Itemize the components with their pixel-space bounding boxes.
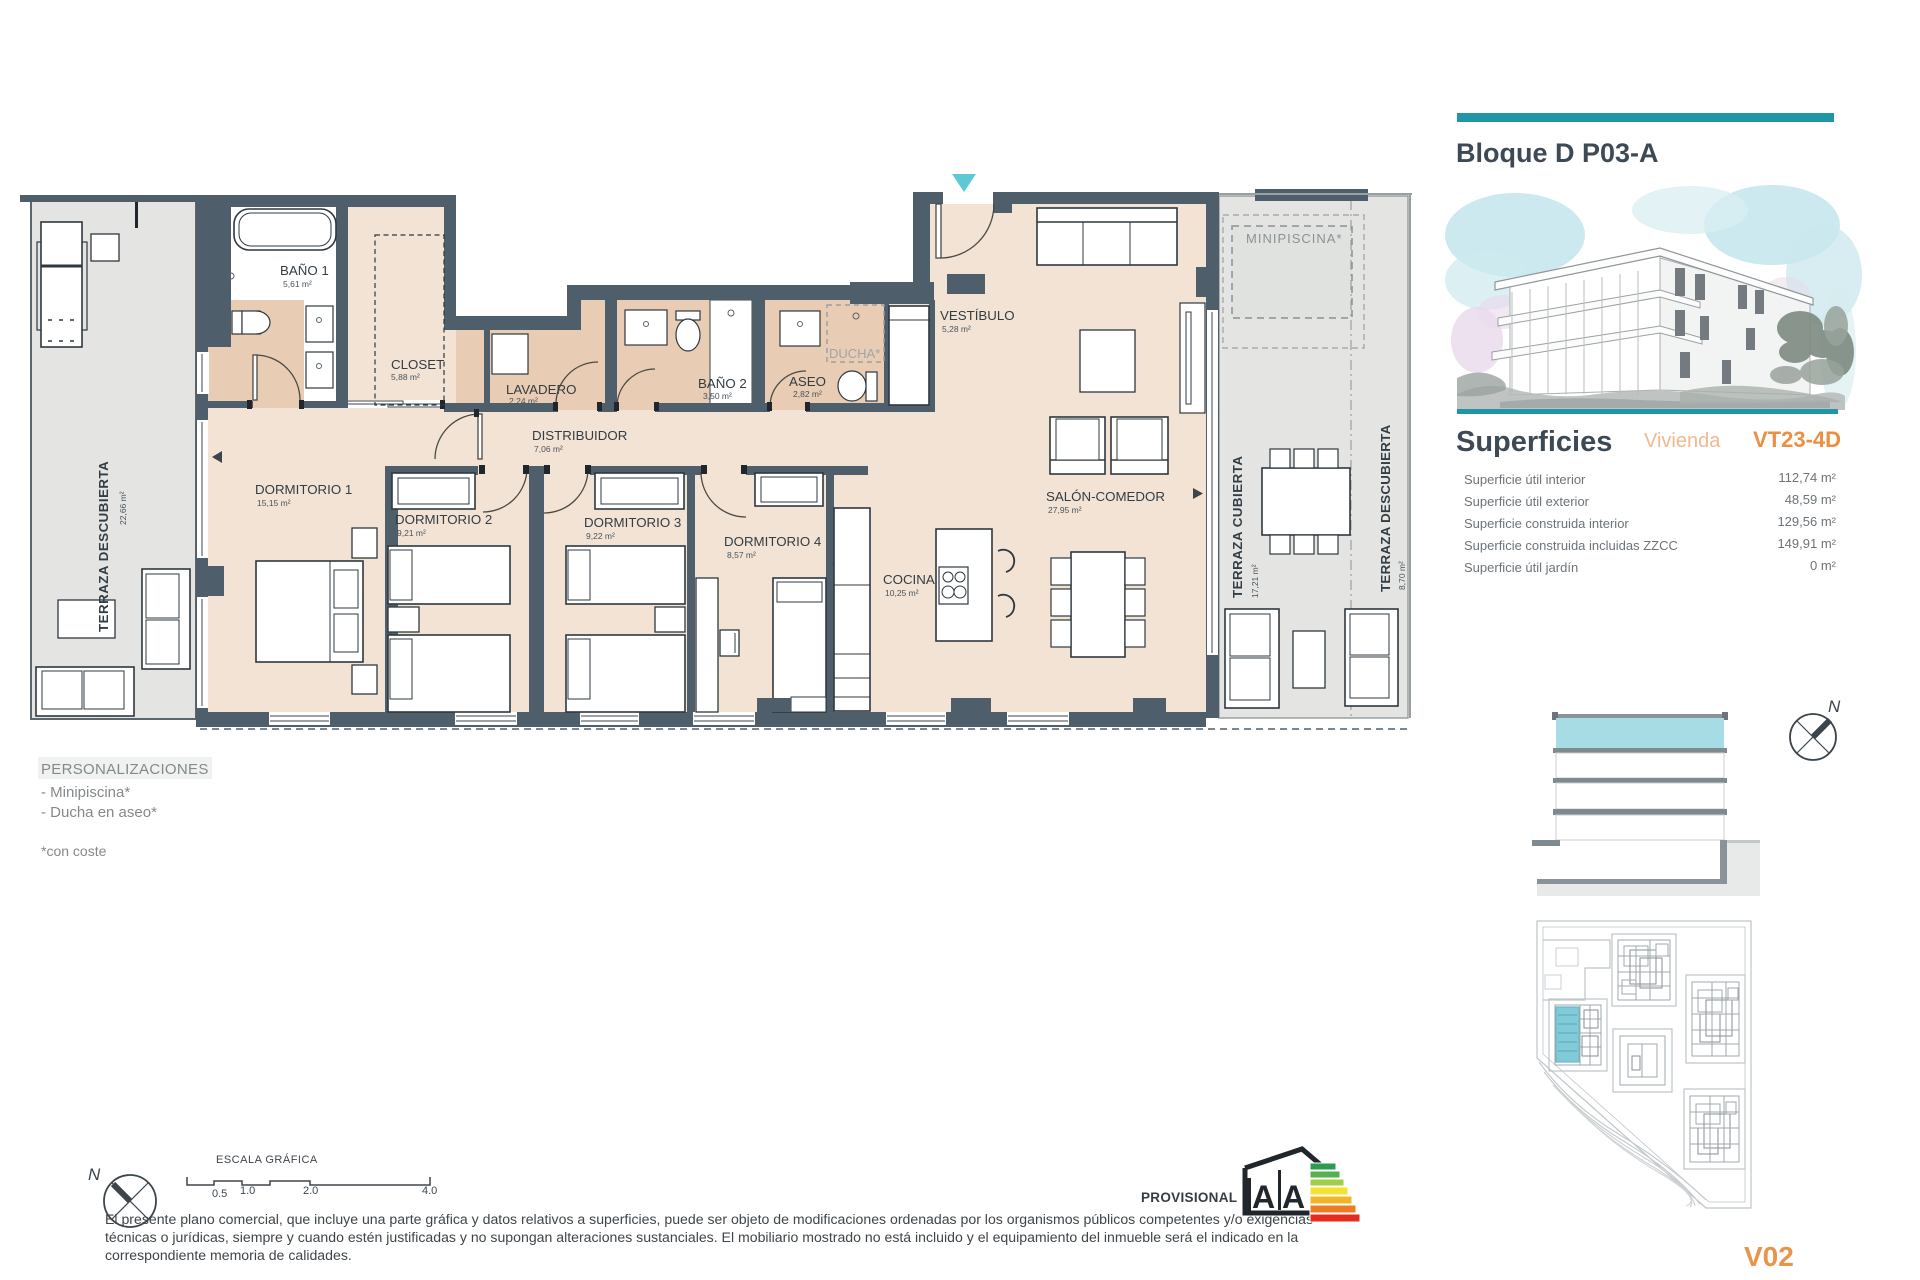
svg-text:48,59 m²: 48,59 m² [1785, 492, 1837, 507]
svg-text:Vivienda: Vivienda [1644, 430, 1721, 452]
svg-text:8,70 m²: 8,70 m² [1397, 561, 1407, 590]
svg-text:7,06 m²: 7,06 m² [534, 444, 563, 454]
svg-text:8,57 m²: 8,57 m² [727, 550, 756, 560]
svg-text:V02: V02 [1744, 1241, 1794, 1272]
svg-text:15,15 m²: 15,15 m² [257, 498, 291, 508]
svg-text:MINIPISCINA*: MINIPISCINA* [1246, 231, 1343, 246]
svg-text:0 m²: 0 m² [1810, 558, 1837, 573]
svg-text:5,61 m²: 5,61 m² [283, 279, 312, 289]
svg-text:129,56 m²: 129,56 m² [1777, 514, 1836, 529]
svg-text:TERRAZA DESCUBIERTA: TERRAZA DESCUBIERTA [1378, 424, 1393, 592]
svg-text:4.0: 4.0 [422, 1185, 437, 1197]
svg-text:Bloque D P03-A: Bloque D P03-A [1456, 138, 1659, 168]
svg-text:SALÓN-COMEDOR: SALÓN-COMEDOR [1046, 489, 1165, 504]
svg-text:TERRAZA CUBIERTA: TERRAZA CUBIERTA [1230, 456, 1245, 598]
svg-text:DUCHA*: DUCHA* [829, 346, 880, 361]
svg-text:10,25 m²: 10,25 m² [885, 588, 919, 598]
svg-text:9,21 m²: 9,21 m² [397, 528, 426, 538]
svg-text:BAÑO 2: BAÑO 2 [698, 376, 747, 391]
svg-text:5,28 m²: 5,28 m² [942, 324, 971, 334]
svg-text:*con coste: *con coste [41, 843, 107, 859]
svg-text:ASEO: ASEO [789, 374, 826, 389]
svg-text:El presente plano comercial, q: El presente plano comercial, que incluye… [105, 1211, 1313, 1227]
svg-text:1.0: 1.0 [240, 1185, 255, 1197]
svg-text:- Minipiscina*: - Minipiscina* [41, 784, 130, 801]
svg-text:17,21 m²: 17,21 m² [1250, 564, 1260, 598]
svg-text:A: A [1252, 1179, 1275, 1215]
svg-text:VT23-4D: VT23-4D [1753, 427, 1841, 452]
svg-text:DISTRIBUIDOR: DISTRIBUIDOR [532, 428, 627, 443]
svg-text:2.0: 2.0 [303, 1185, 318, 1197]
svg-text:DORMITORIO 3: DORMITORIO 3 [584, 515, 681, 530]
svg-text:Superficie útil interior: Superficie útil interior [1464, 472, 1586, 487]
svg-text:ESCALA GRÁFICA: ESCALA GRÁFICA [216, 1153, 318, 1166]
svg-text:PROVISIONAL: PROVISIONAL [1141, 1190, 1237, 1205]
svg-text:27,95 m²: 27,95 m² [1048, 505, 1082, 515]
svg-text:TERRAZA DESCUBIERTA: TERRAZA DESCUBIERTA [96, 461, 111, 632]
svg-text:Superficie útil exterior: Superficie útil exterior [1464, 494, 1590, 509]
svg-text:N: N [88, 1165, 101, 1184]
svg-text:9,22 m²: 9,22 m² [586, 531, 615, 541]
svg-text:Superficie construida interior: Superficie construida interior [1464, 516, 1629, 531]
svg-text:DORMITORIO 2: DORMITORIO 2 [395, 512, 492, 527]
svg-text:A: A [1282, 1179, 1305, 1215]
svg-text:- Ducha en aseo*: - Ducha en aseo* [41, 804, 157, 821]
svg-text:0.5: 0.5 [212, 1188, 227, 1200]
svg-text:22,66 m²: 22,66 m² [118, 491, 128, 525]
svg-text:149,91 m²: 149,91 m² [1777, 536, 1836, 551]
svg-text:COCINA: COCINA [883, 572, 935, 587]
svg-text:N: N [1828, 697, 1841, 716]
svg-text:PERSONALIZACIONES: PERSONALIZACIONES [41, 761, 209, 778]
svg-text:técnicas o jurídicas, siempre: técnicas o jurídicas, siempre y cuando e… [105, 1229, 1298, 1245]
svg-text:Superficie construida incluida: Superficie construida incluidas ZZCC [1464, 538, 1678, 553]
svg-text:Superficie útil jardín: Superficie útil jardín [1464, 560, 1578, 575]
svg-text:DORMITORIO 1: DORMITORIO 1 [255, 482, 352, 497]
svg-text:DORMITORIO 4: DORMITORIO 4 [724, 534, 821, 549]
svg-text:correspondiente memoria de cal: correspondiente memoria de calidades. [105, 1247, 352, 1263]
svg-text:BAÑO 1: BAÑO 1 [280, 263, 329, 278]
svg-text:112,74 m²: 112,74 m² [1778, 470, 1836, 485]
svg-text:2,82 m²: 2,82 m² [793, 389, 822, 399]
svg-text:5,88 m²: 5,88 m² [391, 372, 420, 382]
svg-text:CLOSET: CLOSET [391, 357, 444, 372]
svg-text:LAVADERO: LAVADERO [506, 382, 576, 397]
svg-text:3,50 m²: 3,50 m² [703, 391, 732, 401]
svg-text:VESTÍBULO: VESTÍBULO [940, 308, 1015, 323]
svg-text:2,24 m²: 2,24 m² [509, 396, 538, 406]
svg-text:Superficies: Superficies [1456, 426, 1612, 458]
